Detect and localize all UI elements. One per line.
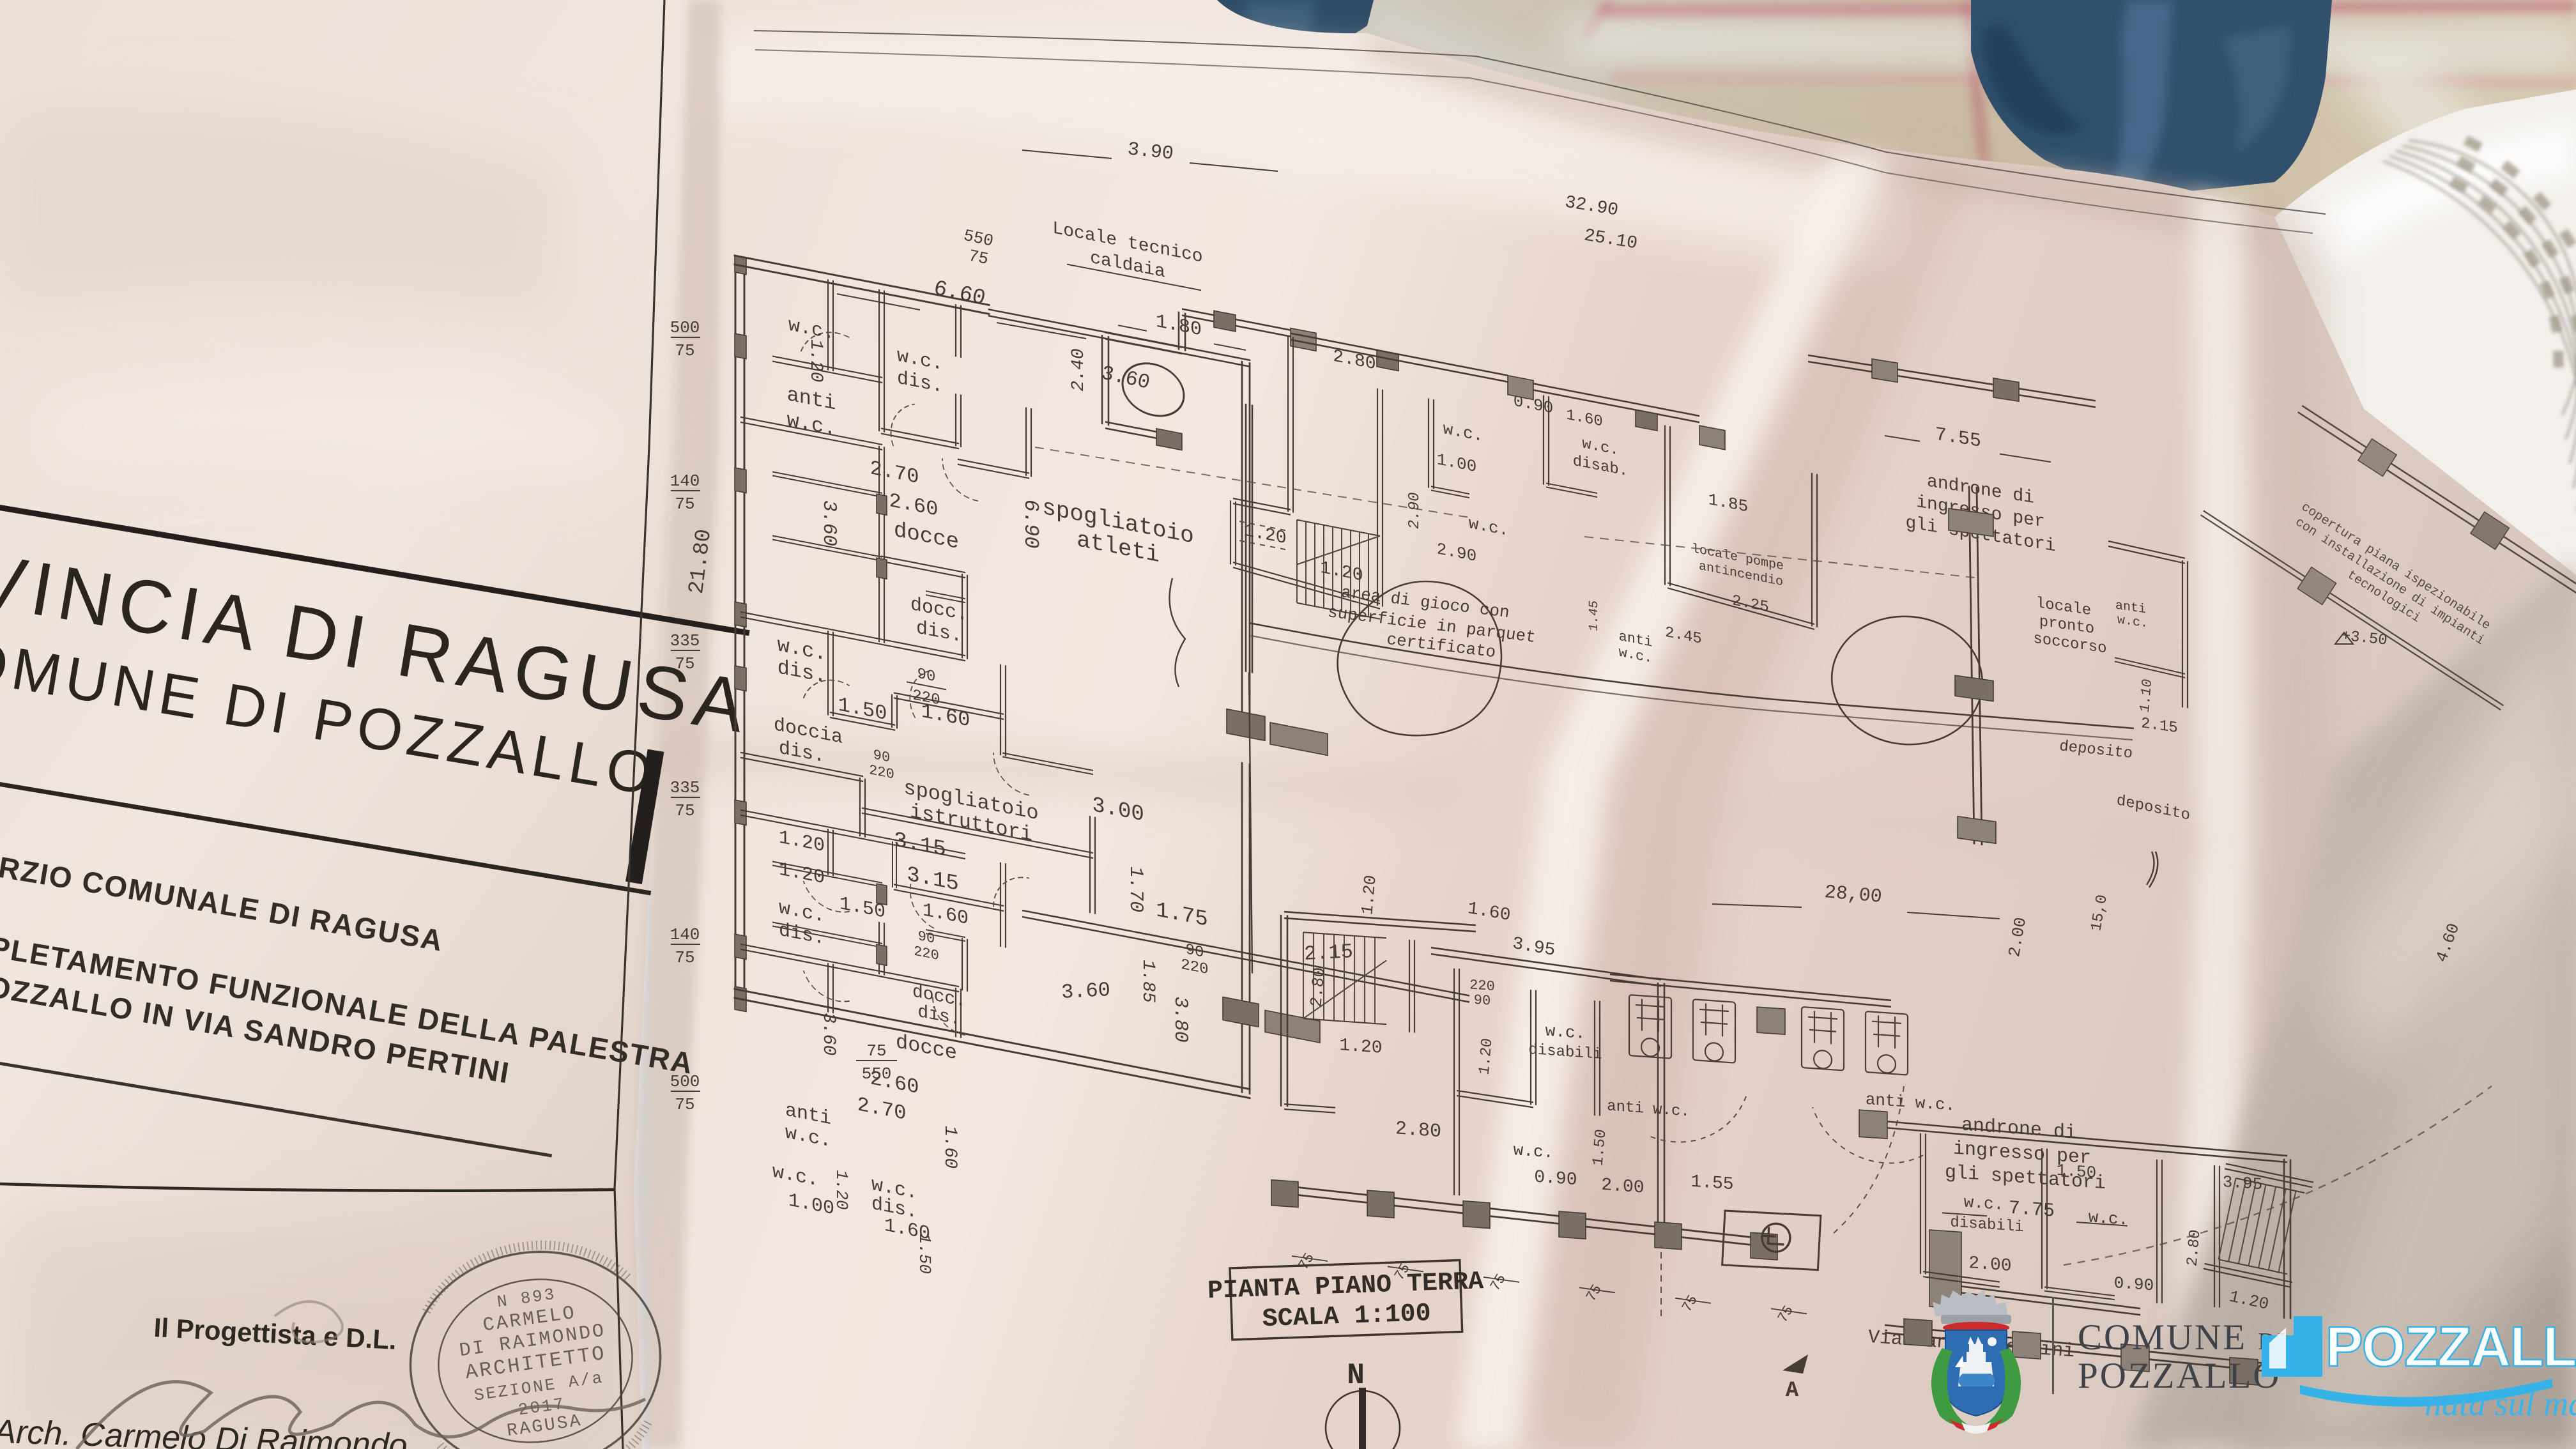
svg-text:1.10: 1.10 [2137, 677, 2156, 714]
svg-text:w.c.: w.c. [1964, 1193, 2004, 1215]
svg-text:75: 75 [675, 1095, 694, 1114]
svg-text:75: 75 [675, 341, 694, 360]
svg-text:1.70: 1.70 [1124, 864, 1146, 915]
svg-text:COMUNE DI: COMUNE DI [2078, 1317, 2287, 1358]
svg-text:w.c.: w.c. [2089, 1207, 2128, 1229]
svg-text:2.80: 2.80 [1307, 966, 1329, 1008]
svg-text:1.85: 1.85 [1138, 958, 1158, 1004]
svg-text:1.50: 1.50 [2057, 1161, 2096, 1183]
svg-text:2.00: 2.00 [1601, 1176, 1644, 1199]
svg-text:6.90: 6.90 [1019, 497, 1043, 551]
svg-text:w.c.: w.c. [1514, 1140, 1553, 1162]
svg-text:N: N [1347, 1359, 1365, 1392]
svg-text:POZZALLO: POZZALLO [2326, 1315, 2576, 1378]
svg-text:1.45: 1.45 [1587, 599, 1602, 632]
svg-text:75: 75 [967, 246, 990, 269]
svg-text:1.50: 1.50 [1590, 1128, 1611, 1167]
svg-text:3.60: 3.60 [818, 1011, 839, 1057]
svg-text:75: 75 [675, 948, 694, 967]
svg-text:2.90: 2.90 [1406, 491, 1423, 531]
svg-text:2.00: 2.00 [1968, 1253, 2011, 1276]
svg-text:90: 90 [1474, 992, 1491, 1009]
svg-text:1.20: 1.20 [832, 1168, 851, 1211]
svg-text:550: 550 [862, 1064, 892, 1084]
svg-text:3.60: 3.60 [818, 498, 839, 548]
svg-text:500: 500 [670, 318, 700, 337]
svg-text:2.40: 2.40 [1068, 346, 1089, 393]
svg-text:3.80: 3.80 [1169, 994, 1191, 1045]
svg-text:75: 75 [675, 801, 694, 820]
svg-text:1.55: 1.55 [1690, 1172, 1733, 1195]
svg-text:2.15: 2.15 [1303, 940, 1354, 966]
svg-text:1.20: 1.20 [1476, 1037, 1497, 1076]
svg-text:335: 335 [670, 778, 700, 797]
svg-text:75: 75 [675, 494, 694, 514]
svg-text:1.20: 1.20 [806, 337, 826, 384]
svg-text:1.50: 1.50 [915, 1232, 934, 1276]
svg-text:1.20: 1.20 [1339, 1036, 1382, 1059]
svg-text:A: A [1786, 1379, 1799, 1403]
svg-text:3.60: 3.60 [1061, 978, 1111, 1004]
svg-text:75: 75 [675, 654, 694, 673]
svg-text:90: 90 [917, 666, 936, 686]
svg-text:POZZALLO: POZZALLO [2078, 1356, 2281, 1396]
svg-text:w.c.: w.c. [1545, 1022, 1585, 1043]
svg-text:500: 500 [670, 1072, 700, 1091]
svg-text:2.80: 2.80 [2184, 1229, 2205, 1268]
svg-text:2.80: 2.80 [1395, 1118, 1441, 1143]
svg-text:SCALA 1:100: SCALA 1:100 [1262, 1299, 1431, 1334]
svg-text:1.20: 1.20 [1358, 874, 1380, 916]
svg-text:335: 335 [670, 631, 700, 650]
svg-text:140: 140 [670, 471, 700, 491]
svg-text:0.90: 0.90 [2114, 1273, 2154, 1295]
svg-text:1.60: 1.60 [940, 1124, 960, 1170]
svg-text:nata sul mare: nata sul mare [2425, 1384, 2576, 1423]
svg-text:140: 140 [670, 925, 700, 944]
svg-text:75: 75 [866, 1041, 886, 1061]
svg-text:0.90: 0.90 [1534, 1167, 1577, 1190]
